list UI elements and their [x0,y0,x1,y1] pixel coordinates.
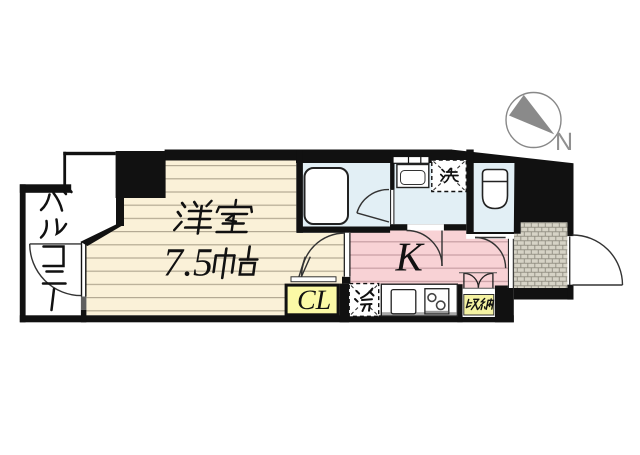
svg-text:K: K [395,234,426,280]
svg-text:N: N [555,128,573,156]
svg-text:CL: CL [297,285,331,316]
svg-text:7.5: 7.5 [163,240,213,285]
